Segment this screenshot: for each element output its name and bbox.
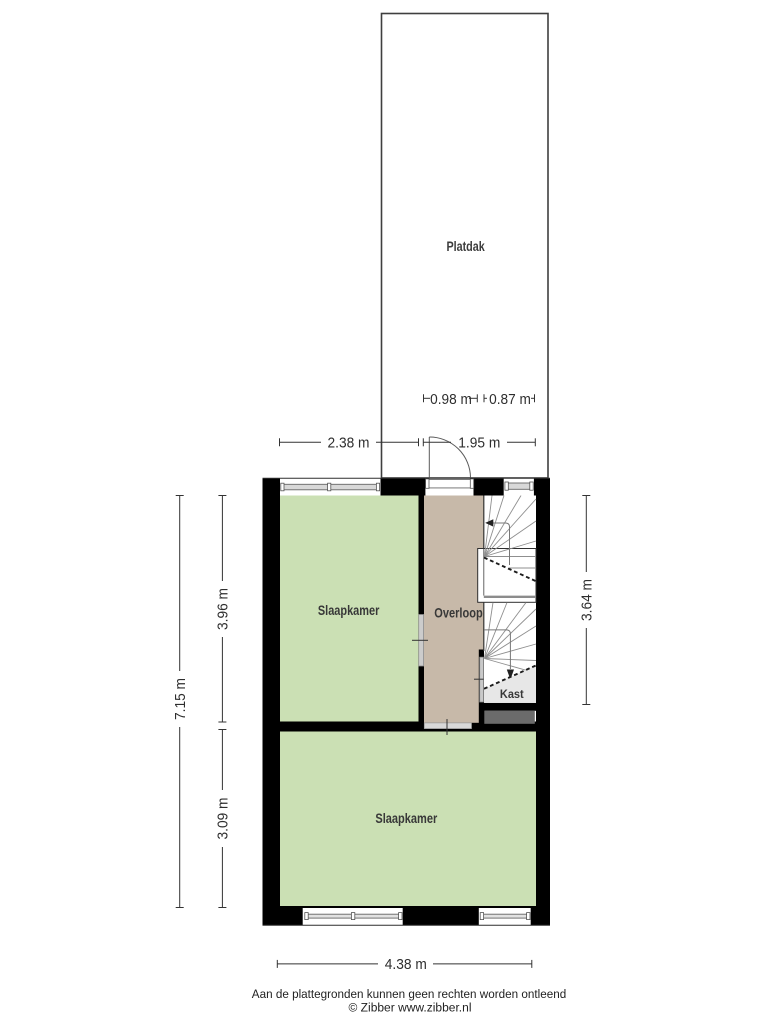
svg-text:0.87 m: 0.87 m [489, 392, 531, 408]
svg-text:2.38 m: 2.38 m [328, 436, 370, 452]
svg-text:Platdak: Platdak [446, 238, 484, 254]
svg-text:0.98 m: 0.98 m [430, 392, 472, 408]
svg-text:Overloop: Overloop [434, 606, 483, 622]
svg-text:Kast: Kast [500, 687, 524, 701]
svg-text:3.09 m: 3.09 m [216, 798, 232, 840]
svg-text:Slaapkamer: Slaapkamer [375, 811, 437, 826]
svg-text:Aan de plattegronden kunnen ge: Aan de plattegronden kunnen geen rechten… [252, 987, 567, 1001]
svg-text:7.15 m: 7.15 m [173, 678, 189, 720]
svg-text:4.38 m: 4.38 m [385, 957, 427, 973]
svg-text:1.95 m: 1.95 m [458, 436, 500, 452]
svg-text:Slaapkamer: Slaapkamer [318, 603, 380, 618]
svg-text:3.64 m: 3.64 m [580, 579, 596, 621]
svg-text:© Zibber www.zibber.nl: © Zibber www.zibber.nl [349, 1001, 472, 1015]
svg-text:3.96 m: 3.96 m [216, 588, 232, 630]
